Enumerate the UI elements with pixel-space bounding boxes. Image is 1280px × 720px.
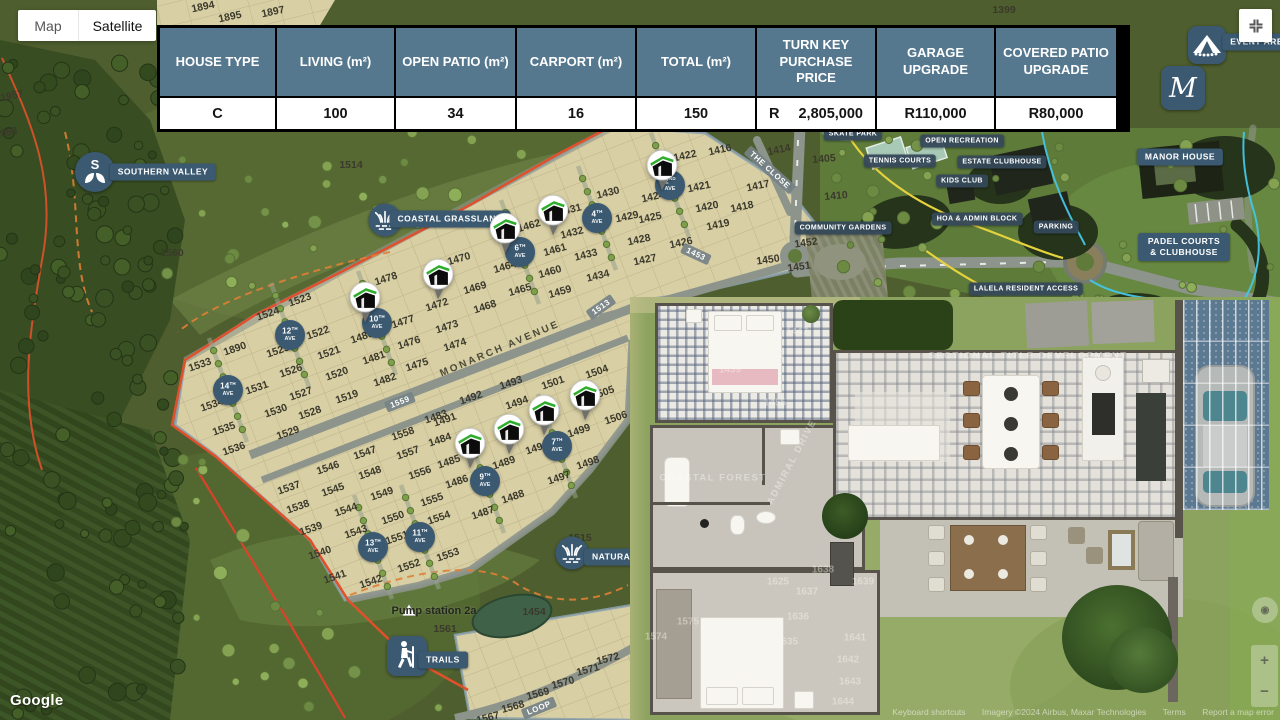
- hedge: [833, 300, 953, 350]
- fullscreen-icon: [1248, 18, 1264, 34]
- concrete-pad: [1025, 300, 1089, 348]
- ghost-lot-number: 1638: [812, 565, 834, 576]
- map-canvas: 1894189518971957195813991514156015151454…: [0, 0, 1280, 720]
- cell-living: 100: [277, 98, 396, 129]
- price-currency: R: [769, 106, 779, 122]
- sink: [1142, 359, 1170, 383]
- bush: [822, 493, 868, 539]
- google-logo[interactable]: Google: [10, 692, 63, 709]
- col-open-patio: OPEN PATIO (m²): [396, 28, 517, 98]
- ghost-lot-number: 1639: [852, 577, 874, 588]
- ghost-lot-number: 1575: [677, 617, 699, 628]
- col-total: TOTAL (m²): [637, 28, 757, 98]
- col-house-type: HOUSE TYPE: [160, 28, 277, 98]
- ghost-lot-number: 1439: [719, 365, 741, 376]
- kitchen-counter: [1136, 393, 1166, 481]
- plant: [802, 305, 820, 323]
- ghost-lot-number: 1447: [786, 327, 808, 338]
- cell-house-type: C: [160, 98, 277, 129]
- sofa: [848, 425, 940, 461]
- cell-total: 150: [637, 98, 757, 129]
- col-living: LIVING (m²): [277, 28, 396, 98]
- satellite-button[interactable]: Satellite: [78, 10, 156, 41]
- basin: [756, 511, 776, 524]
- concrete-pad: [1091, 300, 1154, 344]
- keyboard-shortcuts-link[interactable]: Keyboard shortcuts: [892, 707, 965, 717]
- map-type-control[interactable]: Map Satellite: [18, 10, 156, 41]
- ghost-lot-number: 1642: [837, 655, 859, 666]
- col-covered-patio: COVERED PATIO UPGRADE: [996, 28, 1116, 98]
- report-error-link[interactable]: Report a map error: [1202, 707, 1274, 717]
- col-garage: GARAGE UPGRADE: [877, 28, 996, 98]
- ghost-lot-number: 1440: [707, 337, 729, 348]
- ghost-lot-number: 1644: [832, 697, 854, 708]
- ghost-lot-number: 1628: [741, 648, 763, 659]
- ghost-lot-number: 1643: [839, 677, 861, 688]
- ghost-lot-number: 1637: [796, 587, 818, 598]
- cell-garage: R110,000: [877, 98, 996, 129]
- ghost-lot-number: 1446: [762, 350, 784, 361]
- ghost-lot-number: 1635: [776, 637, 798, 648]
- pergola: [1183, 300, 1269, 510]
- ghost-lot-number: 1455: [764, 398, 786, 409]
- ghost-lot-number: 1641: [844, 633, 866, 644]
- floorplan-overlay: ◉ + − 1447144614401439145516381639162516…: [630, 297, 1280, 720]
- zoom-in-button[interactable]: +: [1260, 652, 1269, 669]
- zoom-controls-ghost[interactable]: + −: [1251, 645, 1278, 707]
- cell-carport: 16: [517, 98, 637, 129]
- ghost-map-text: COASTAL FOREST: [659, 473, 766, 484]
- cell-price: R 2,805,000: [757, 98, 877, 129]
- price-amount: 2,805,000: [798, 106, 863, 122]
- street-view-control-ghost[interactable]: ◉: [1252, 597, 1278, 623]
- ghost-lot-number: 1625: [767, 577, 789, 588]
- toilet: [730, 515, 745, 535]
- ghost-lot-number: 1636: [787, 612, 809, 623]
- cell-open-patio: 34: [396, 98, 517, 129]
- ghost-map-text: SECTIONAL TITLE DEVELOPMENT: [928, 351, 1127, 362]
- cell-covered-patio: R80,000: [996, 98, 1116, 129]
- pricing-table: HOUSE TYPE LIVING (m²) OPEN PATIO (m²) C…: [157, 25, 1130, 132]
- map-button[interactable]: Map: [18, 10, 78, 41]
- ghost-lot-number: 1574: [645, 632, 667, 643]
- outdoor-table: [950, 525, 1026, 591]
- map-attribution[interactable]: Keyboard shortcuts Imagery ©2024 Airb­us…: [878, 707, 1274, 717]
- terms-link[interactable]: Terms: [1163, 707, 1186, 717]
- zoom-out-button[interactable]: −: [1260, 683, 1269, 700]
- col-carport: CARPORT (m²): [517, 28, 637, 98]
- col-price: TURN KEY PURCHASE PRICE: [757, 28, 877, 98]
- imagery-credit: Imagery ©2024 Airb­us, Maxar Technologie…: [982, 707, 1146, 717]
- lounger: [1138, 521, 1174, 581]
- ghost-lot-number: 1629: [731, 673, 753, 684]
- tree: [1108, 627, 1178, 693]
- fullscreen-button[interactable]: [1239, 9, 1272, 42]
